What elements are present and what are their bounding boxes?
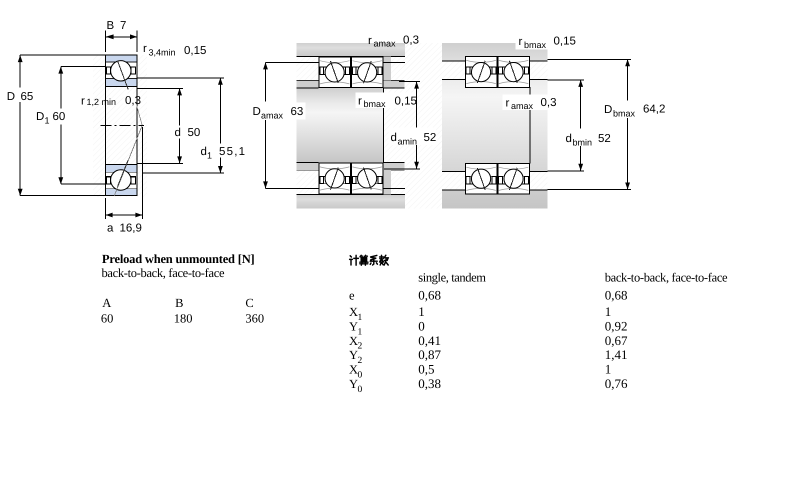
svg-text:A: A: [102, 296, 111, 310]
svg-text:0,15: 0,15: [395, 96, 417, 108]
svg-text:back-to-back, face-to-face: back-to-back, face-to-face: [102, 266, 225, 280]
svg-text:bmax: bmax: [364, 99, 387, 109]
svg-text:0,92: 0,92: [605, 318, 628, 333]
svg-text:1: 1: [207, 151, 212, 161]
svg-text:0,3: 0,3: [403, 35, 419, 47]
svg-text:0,41: 0,41: [418, 333, 441, 348]
svg-text:r: r: [358, 96, 362, 108]
svg-text:r: r: [81, 96, 85, 108]
svg-text:60: 60: [53, 111, 66, 123]
svg-text:0,87: 0,87: [418, 347, 441, 362]
svg-text:bmax: bmax: [613, 109, 636, 119]
svg-text:1: 1: [605, 362, 612, 377]
svg-text:0,5: 0,5: [418, 362, 434, 377]
svg-text:2: 2: [358, 342, 363, 352]
svg-text:0,3: 0,3: [125, 95, 141, 107]
svg-text:55,1: 55,1: [219, 146, 245, 158]
svg-text:0: 0: [358, 371, 363, 381]
svg-text:bmax: bmax: [524, 40, 547, 50]
svg-text:0,67: 0,67: [605, 333, 628, 348]
svg-text:60: 60: [101, 312, 114, 326]
svg-text:0,76: 0,76: [605, 376, 628, 391]
svg-text:D: D: [36, 111, 44, 123]
svg-text:r: r: [368, 35, 372, 47]
svg-text:50: 50: [188, 127, 201, 139]
svg-text:amax: amax: [261, 111, 284, 121]
svg-text:2: 2: [358, 356, 363, 366]
svg-text:1,41: 1,41: [605, 347, 628, 362]
svg-text:d: d: [201, 146, 207, 158]
svg-text:r: r: [143, 43, 147, 55]
svg-text:0: 0: [418, 318, 425, 333]
svg-text:C: C: [245, 296, 253, 310]
svg-text:7: 7: [120, 20, 126, 32]
svg-text:B: B: [107, 20, 115, 32]
svg-text:0,68: 0,68: [418, 288, 441, 303]
svg-text:0,15: 0,15: [184, 45, 206, 57]
svg-text:1: 1: [358, 327, 363, 337]
svg-text:d: d: [391, 132, 397, 144]
svg-text:D: D: [253, 106, 261, 118]
svg-text:1: 1: [418, 304, 425, 319]
svg-text:amax: amax: [511, 101, 534, 111]
svg-text:64,2: 64,2: [643, 104, 665, 116]
svg-text:amax: amax: [374, 39, 397, 49]
svg-text:bmin: bmin: [573, 138, 593, 148]
svg-text:360: 360: [245, 312, 264, 326]
svg-text:1: 1: [605, 304, 612, 319]
svg-text:0,3: 0,3: [541, 97, 557, 109]
svg-text:D: D: [7, 91, 15, 103]
svg-text:D: D: [604, 104, 612, 116]
svg-text:single, tandem: single, tandem: [418, 270, 486, 284]
svg-text:63: 63: [291, 106, 304, 118]
svg-text:d: d: [175, 127, 181, 139]
svg-text:0,15: 0,15: [554, 36, 576, 48]
svg-text:d: d: [566, 133, 572, 145]
svg-text:1: 1: [45, 116, 50, 126]
svg-text:r: r: [506, 98, 510, 110]
svg-text:16,9: 16,9: [120, 223, 142, 235]
svg-text:e: e: [349, 289, 355, 303]
svg-text:3,4min: 3,4min: [149, 48, 176, 58]
svg-text:Preload when unmounted [N]: Preload when unmounted [N]: [102, 252, 255, 266]
svg-text:1: 1: [358, 313, 363, 323]
svg-text:B: B: [175, 296, 183, 310]
svg-text:180: 180: [174, 312, 193, 326]
svg-text:52: 52: [424, 132, 437, 144]
svg-text:0: 0: [358, 385, 363, 395]
svg-text:65: 65: [21, 91, 34, 103]
svg-text:back-to-back, face-to-face: back-to-back, face-to-face: [605, 270, 728, 284]
svg-text:1,2 min: 1,2 min: [87, 97, 117, 107]
svg-text:amin: amin: [398, 137, 418, 147]
svg-text:0,68: 0,68: [605, 288, 628, 303]
svg-text:0,38: 0,38: [418, 376, 441, 391]
svg-text:a: a: [107, 223, 114, 235]
svg-text:52: 52: [598, 133, 611, 145]
svg-text:r: r: [519, 36, 523, 48]
